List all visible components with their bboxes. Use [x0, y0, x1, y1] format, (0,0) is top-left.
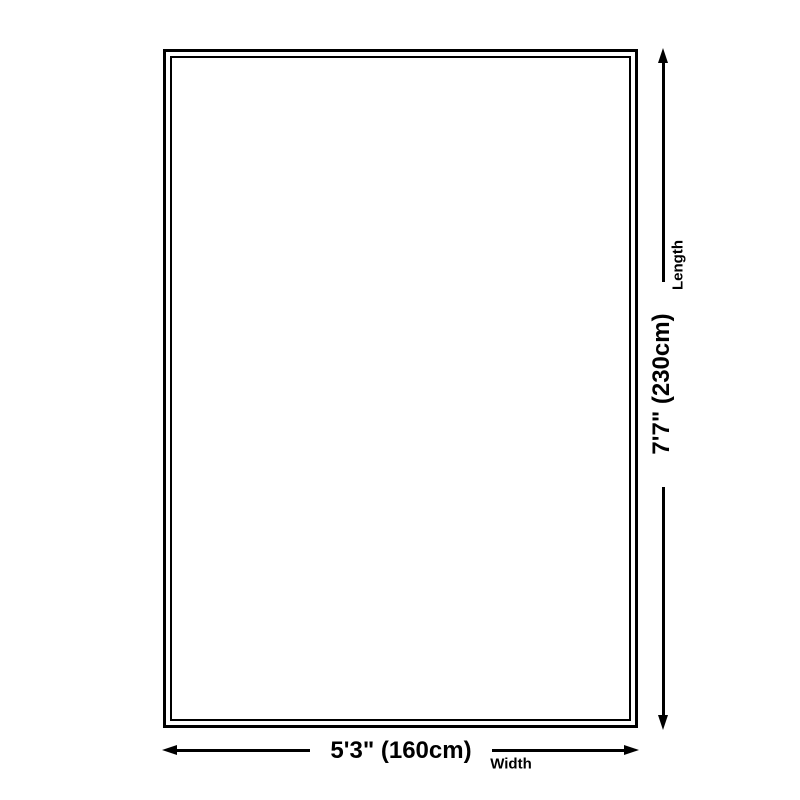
width-label: Width: [490, 757, 532, 772]
arrow-down-icon: [658, 715, 668, 730]
width-value: 5'3" (160cm): [330, 739, 471, 763]
length-dimension-line-bottom: [662, 487, 665, 717]
product-outline-rectangle: [163, 49, 638, 728]
length-label: Length: [671, 240, 686, 290]
product-outline-inner-border: [170, 56, 631, 721]
width-dimension-line-left: [175, 749, 310, 752]
length-dimension-line-top: [662, 58, 665, 282]
length-value: 7'7" (230cm): [650, 313, 674, 454]
size-diagram: 7'7" (230cm) Length 5'3" (160cm) Width: [0, 0, 800, 800]
arrow-right-icon: [624, 745, 639, 755]
width-dimension-line-right: [492, 749, 624, 752]
